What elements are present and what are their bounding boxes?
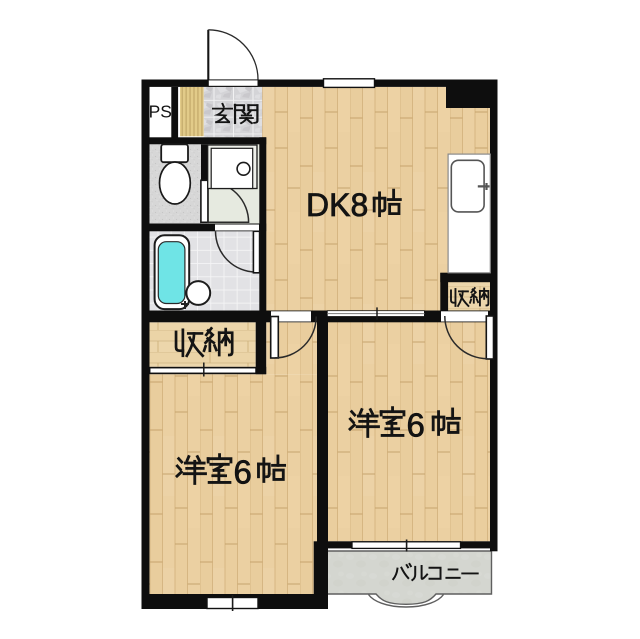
svg-text:6: 6 — [234, 454, 252, 491]
svg-text:6: 6 — [407, 407, 425, 444]
svg-text:DK8: DK8 — [306, 187, 368, 223]
svg-text:PS: PS — [149, 102, 172, 122]
